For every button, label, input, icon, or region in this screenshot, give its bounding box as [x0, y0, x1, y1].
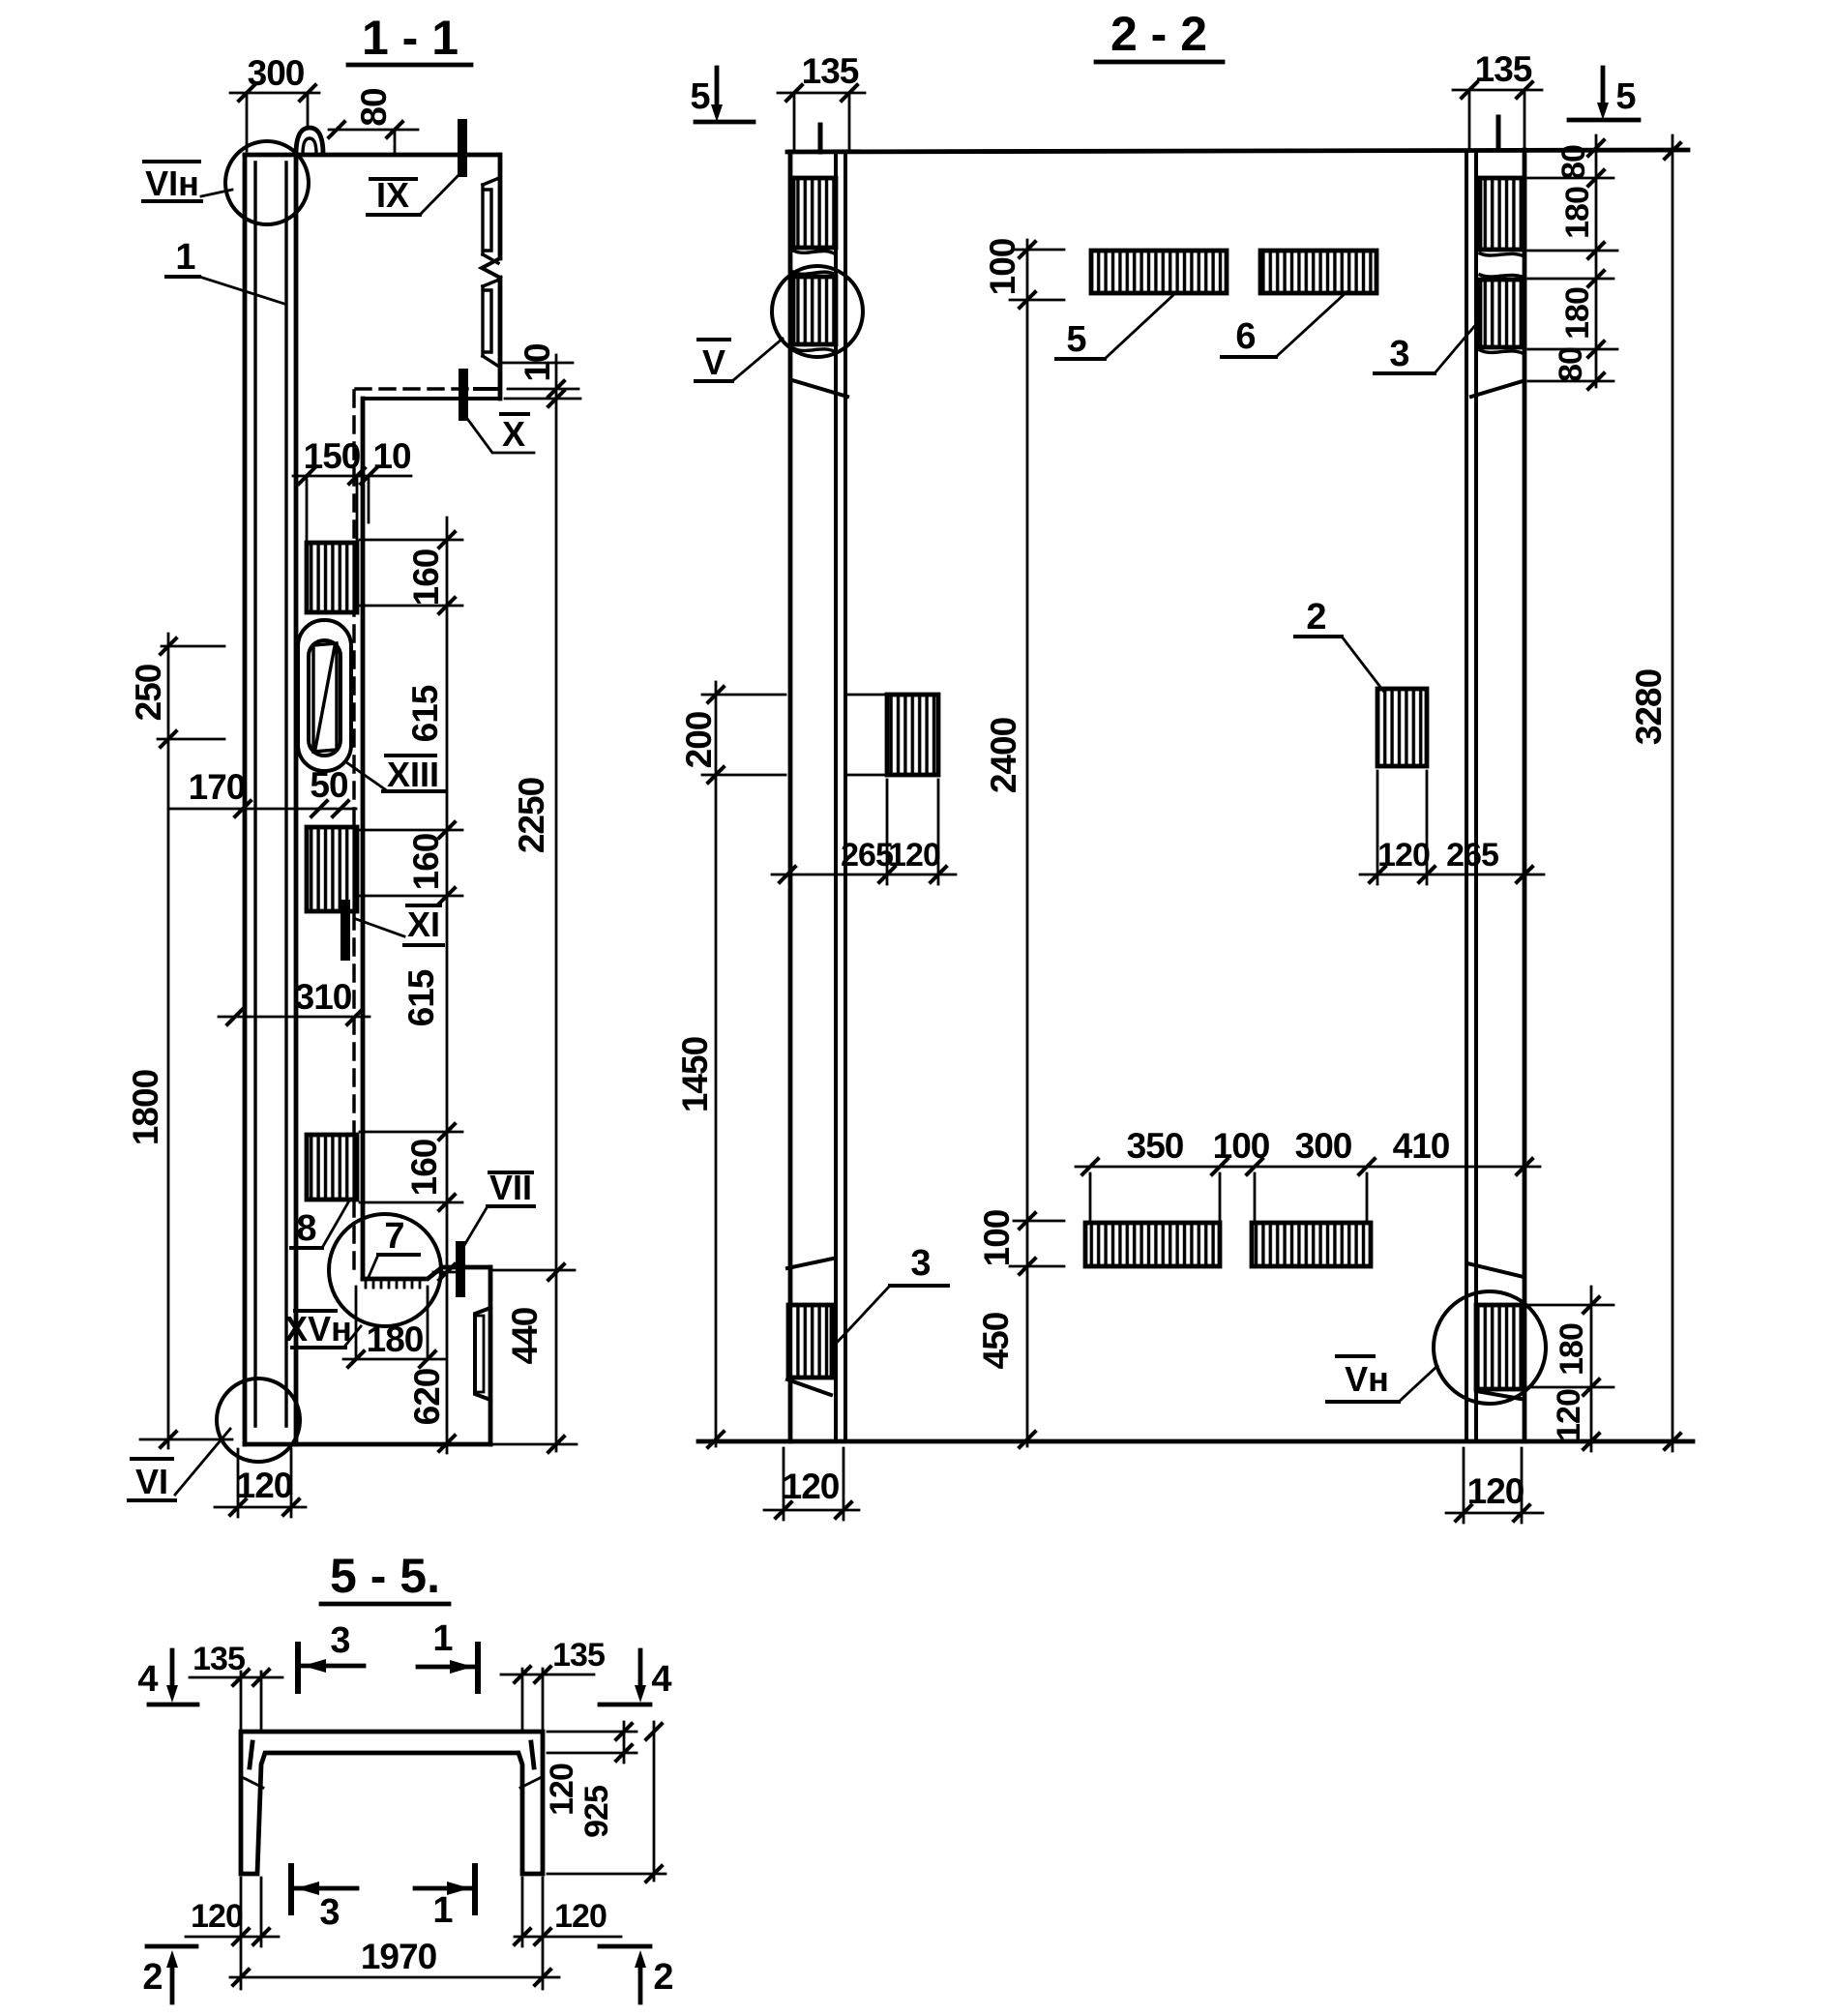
svg-text:1: 1 [175, 237, 195, 278]
svg-text:1: 1 [432, 1618, 453, 1659]
svg-text:100: 100 [977, 1209, 1017, 1266]
svg-text:200: 200 [679, 711, 719, 768]
svg-text:310: 310 [295, 977, 352, 1017]
svg-text:VI: VI [135, 1462, 168, 1501]
svg-text:5 - 5.: 5 - 5. [330, 1549, 440, 1603]
svg-text:925: 925 [578, 1786, 615, 1838]
svg-text:300: 300 [248, 53, 305, 93]
svg-text:1800: 1800 [126, 1069, 165, 1145]
svg-text:10: 10 [518, 343, 557, 382]
svg-text:3: 3 [910, 1243, 931, 1284]
svg-text:100: 100 [983, 238, 1022, 295]
svg-text:2: 2 [653, 1957, 673, 1998]
svg-text:135: 135 [192, 1641, 245, 1677]
svg-text:615: 615 [401, 969, 441, 1026]
svg-text:135: 135 [802, 51, 859, 91]
svg-text:350: 350 [1127, 1126, 1184, 1166]
svg-text:1 - 1: 1 - 1 [362, 11, 459, 65]
svg-text:3280: 3280 [1629, 668, 1669, 745]
svg-text:2250: 2250 [512, 777, 551, 853]
svg-text:180: 180 [1554, 1323, 1590, 1376]
svg-text:IX: IX [376, 175, 409, 215]
svg-text:120: 120 [1551, 1389, 1587, 1441]
svg-text:265: 265 [841, 837, 893, 874]
svg-text:120: 120 [544, 1764, 580, 1816]
svg-text:4: 4 [651, 1659, 671, 1700]
svg-text:80: 80 [354, 88, 394, 127]
svg-text:5: 5 [690, 76, 710, 117]
svg-text:160: 160 [406, 833, 446, 890]
svg-text:1970: 1970 [361, 1937, 437, 1976]
svg-text:3: 3 [319, 1892, 340, 1933]
svg-text:150: 150 [304, 436, 361, 476]
svg-text:170: 170 [189, 767, 246, 807]
svg-text:440: 440 [505, 1307, 545, 1364]
svg-text:3: 3 [330, 1620, 350, 1661]
svg-text:50: 50 [310, 765, 348, 805]
svg-text:120: 120 [1377, 837, 1430, 874]
svg-text:620: 620 [407, 1368, 447, 1425]
svg-text:1: 1 [432, 1890, 453, 1931]
svg-text:4: 4 [137, 1659, 158, 1700]
svg-text:8: 8 [296, 1208, 316, 1249]
svg-text:120: 120 [783, 1467, 840, 1506]
svg-text:265: 265 [1446, 837, 1498, 874]
svg-text:160: 160 [404, 1139, 444, 1196]
svg-text:450: 450 [976, 1312, 1016, 1369]
svg-text:V: V [702, 342, 725, 382]
svg-text:410: 410 [1393, 1126, 1450, 1166]
svg-text:XIII: XIII [387, 755, 439, 794]
svg-text:180: 180 [1559, 287, 1596, 340]
svg-text:80: 80 [1553, 347, 1589, 382]
svg-text:7: 7 [384, 1216, 404, 1257]
svg-text:Vн: Vн [1345, 1359, 1389, 1399]
svg-text:X: X [502, 414, 525, 454]
svg-text:XI: XI [407, 904, 440, 944]
svg-text:135: 135 [552, 1637, 605, 1674]
svg-text:5: 5 [1615, 76, 1636, 117]
svg-text:80: 80 [1555, 145, 1592, 180]
svg-text:2: 2 [1306, 597, 1326, 637]
svg-text:XVн: XVн [284, 1309, 352, 1349]
svg-text:615: 615 [405, 685, 445, 742]
svg-text:6: 6 [1235, 316, 1256, 357]
svg-text:120: 120 [1467, 1471, 1524, 1511]
svg-text:180: 180 [367, 1319, 424, 1359]
svg-text:10: 10 [372, 436, 411, 476]
svg-text:2 - 2: 2 - 2 [1110, 7, 1207, 61]
svg-text:100: 100 [1213, 1126, 1270, 1166]
svg-text:2400: 2400 [984, 717, 1023, 793]
svg-text:300: 300 [1295, 1126, 1352, 1166]
svg-text:5: 5 [1066, 319, 1086, 360]
svg-text:120: 120 [236, 1466, 293, 1505]
svg-text:3: 3 [1389, 334, 1409, 374]
svg-text:160: 160 [406, 548, 446, 606]
svg-text:VIн: VIн [145, 163, 199, 203]
svg-text:1450: 1450 [675, 1036, 715, 1112]
svg-text:120: 120 [888, 837, 940, 874]
svg-text:2: 2 [142, 1957, 163, 1998]
svg-text:180: 180 [1559, 187, 1596, 239]
svg-text:250: 250 [129, 664, 168, 721]
svg-text:135: 135 [1475, 49, 1532, 89]
svg-text:120: 120 [191, 1898, 243, 1935]
svg-text:120: 120 [554, 1898, 607, 1935]
